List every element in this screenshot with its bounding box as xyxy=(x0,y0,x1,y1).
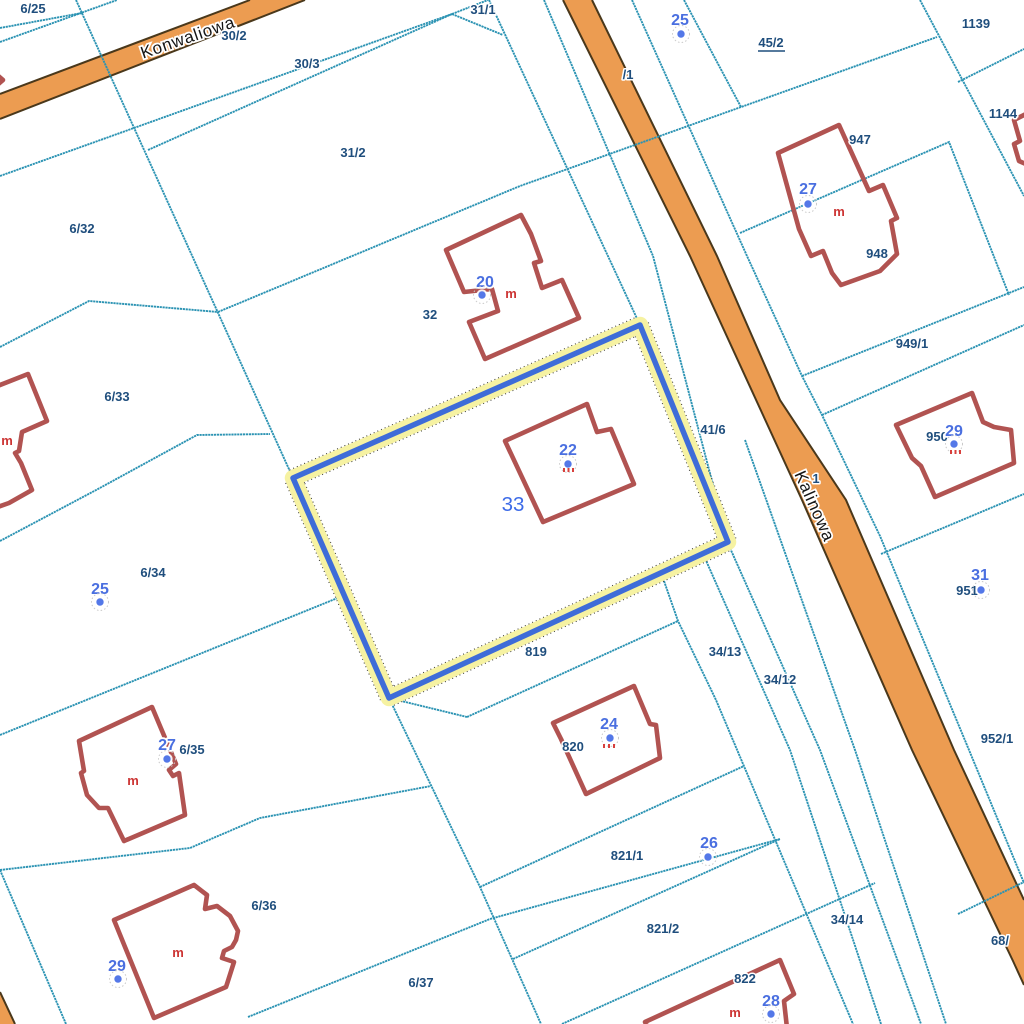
svg-text:34/13: 34/13 xyxy=(709,644,742,659)
svg-text:952/1: 952/1 xyxy=(981,731,1014,746)
svg-text:31: 31 xyxy=(971,567,989,584)
svg-text:m: m xyxy=(1,433,13,448)
svg-text:/1: /1 xyxy=(623,67,634,82)
svg-text:28: 28 xyxy=(762,993,780,1010)
svg-text:1139: 1139 xyxy=(962,16,990,31)
svg-text:6/34: 6/34 xyxy=(140,565,166,580)
svg-text:34/12: 34/12 xyxy=(764,672,797,687)
svg-text:1: 1 xyxy=(812,471,819,486)
svg-text:31/1: 31/1 xyxy=(470,2,495,17)
svg-text:31/2: 31/2 xyxy=(340,145,365,160)
svg-text:948: 948 xyxy=(866,246,888,261)
svg-text:821/2: 821/2 xyxy=(647,921,680,936)
svg-text:30/2: 30/2 xyxy=(221,28,246,43)
svg-text:27: 27 xyxy=(158,737,176,754)
svg-text:6/35: 6/35 xyxy=(179,742,204,757)
svg-text:32: 32 xyxy=(423,307,437,322)
svg-text:25: 25 xyxy=(671,12,689,29)
svg-text:33: 33 xyxy=(502,493,525,516)
svg-text:25: 25 xyxy=(91,581,109,598)
svg-text:6/36: 6/36 xyxy=(251,898,276,913)
svg-text:34/14: 34/14 xyxy=(831,912,864,927)
svg-text:951: 951 xyxy=(956,583,978,598)
svg-text:m: m xyxy=(127,773,139,788)
svg-text:947: 947 xyxy=(849,132,871,147)
svg-text:m: m xyxy=(505,286,517,301)
svg-text:822: 822 xyxy=(734,971,756,986)
svg-text:m: m xyxy=(833,204,845,219)
svg-text:820: 820 xyxy=(562,739,584,754)
svg-text:m: m xyxy=(172,945,184,960)
svg-text:m: m xyxy=(729,1005,741,1020)
svg-text:949/1: 949/1 xyxy=(896,336,929,351)
svg-text:30/3: 30/3 xyxy=(294,56,319,71)
svg-text:6/33: 6/33 xyxy=(104,389,129,404)
svg-text:22: 22 xyxy=(559,442,577,459)
svg-text:821/1: 821/1 xyxy=(611,848,644,863)
svg-text:6/25: 6/25 xyxy=(20,1,45,16)
svg-text:68/: 68/ xyxy=(991,933,1009,948)
svg-text:29: 29 xyxy=(945,423,963,440)
svg-text:1144: 1144 xyxy=(989,106,1018,121)
svg-text:819: 819 xyxy=(525,644,547,659)
svg-text:26: 26 xyxy=(700,835,718,852)
svg-text:6/32: 6/32 xyxy=(69,221,94,236)
svg-text:6/37: 6/37 xyxy=(408,975,433,990)
svg-text:41/6: 41/6 xyxy=(700,422,725,437)
svg-text:45/2: 45/2 xyxy=(758,35,783,50)
svg-text:20: 20 xyxy=(476,274,494,291)
svg-text:24: 24 xyxy=(600,716,618,733)
svg-text:27: 27 xyxy=(799,181,817,198)
